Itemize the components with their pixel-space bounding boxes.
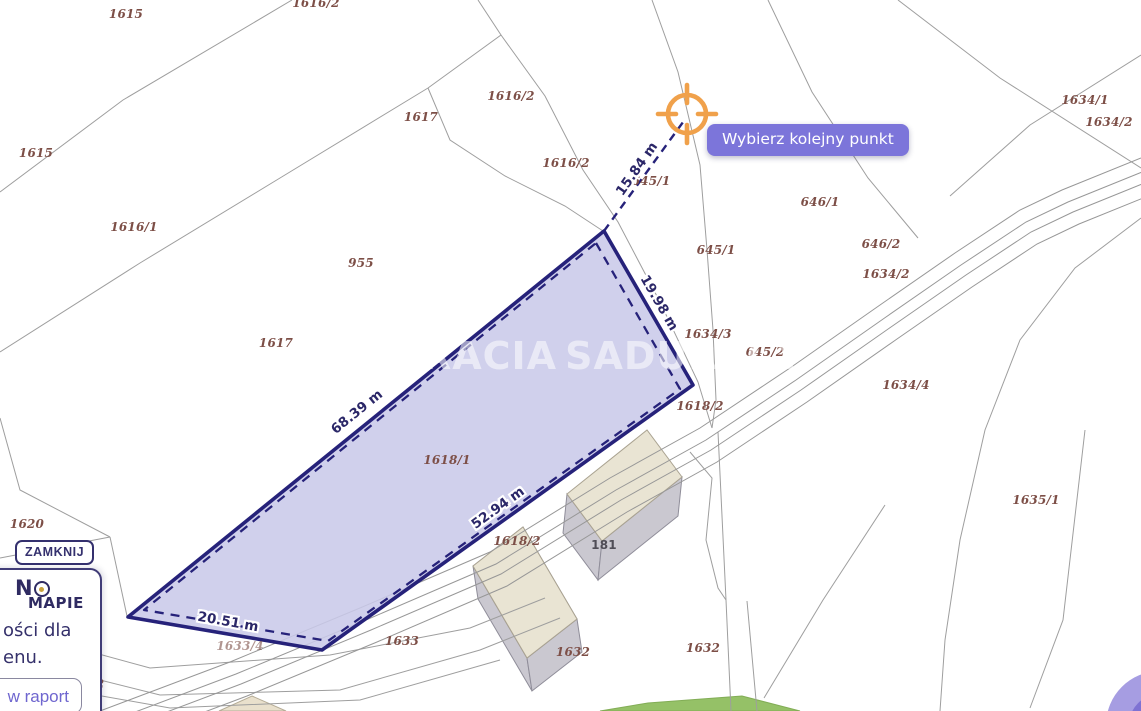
map-fab-inner-circle bbox=[1129, 694, 1141, 711]
namapie-logo: N MAPIE bbox=[15, 578, 84, 612]
measuring-line bbox=[604, 118, 686, 231]
green-area bbox=[600, 696, 800, 711]
watermark-logo-icon bbox=[394, 334, 442, 364]
watermark-text-right: SADURSCY bbox=[565, 334, 804, 378]
panel-text-line1: ości dla bbox=[3, 620, 71, 641]
close-button[interactable]: ZAMKNIJ bbox=[15, 540, 94, 565]
logo-text: MAPIE bbox=[28, 594, 84, 612]
next-point-tooltip: Wybierz kolejny punkt bbox=[707, 124, 909, 156]
highlighted-parcel-polygon[interactable] bbox=[128, 231, 693, 650]
panel-text-line2: enu. bbox=[3, 647, 43, 668]
info-panel: N MAPIE ości dla enu. w raport bbox=[0, 568, 102, 711]
logo-ring-icon bbox=[34, 581, 50, 597]
watermark: BRACIA SADURSCY bbox=[392, 334, 804, 378]
map-canvas[interactable]: BRACIA SADURSCY 16151616/2161516171616/2… bbox=[0, 0, 1141, 711]
report-button[interactable]: w raport bbox=[0, 678, 82, 711]
